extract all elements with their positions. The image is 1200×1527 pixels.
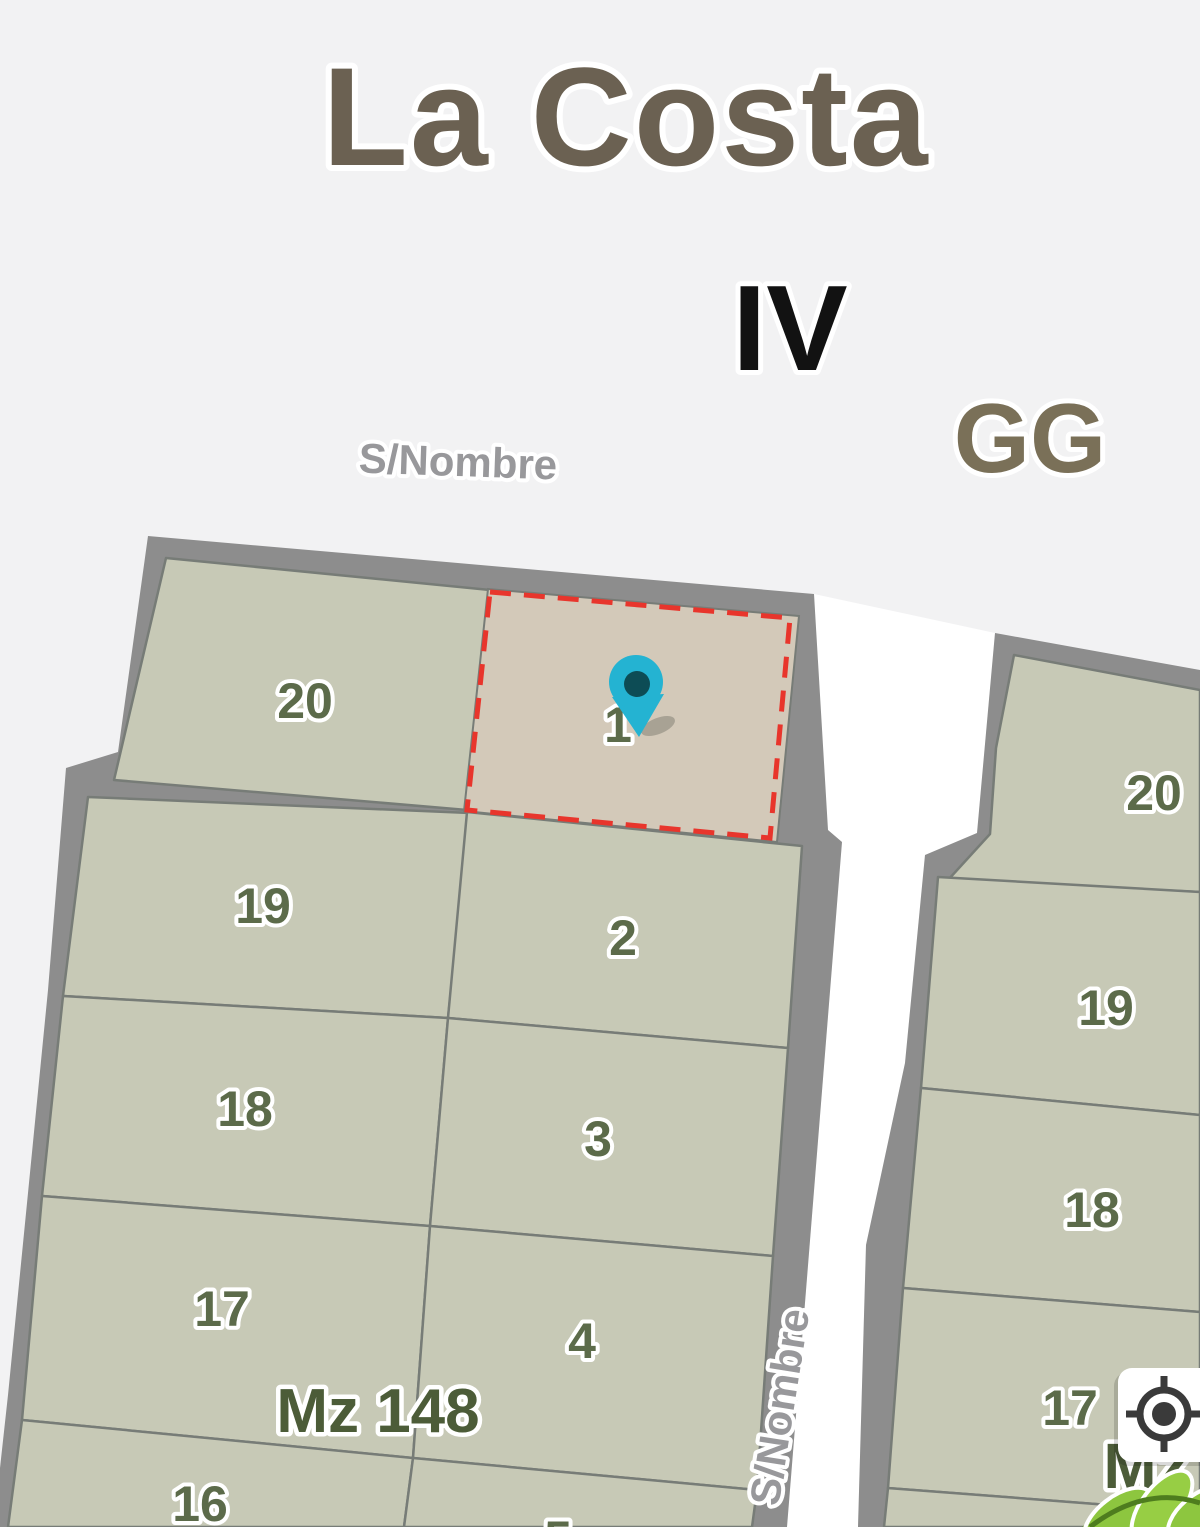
parcel-number-right-17: 17 — [1042, 1380, 1098, 1436]
parcel-number-lot3: 3 — [584, 1111, 612, 1167]
zone-label: GG — [954, 383, 1106, 493]
map-title: La Costa — [322, 38, 929, 195]
parcel-number-lot4: 4 — [568, 1313, 596, 1369]
parcel-number-right-18: 18 — [1064, 1182, 1120, 1238]
parcel-number-lot2: 2 — [609, 910, 637, 966]
pin-center-dot — [624, 671, 650, 697]
parcel-number-right-19: 19 — [1078, 980, 1134, 1036]
block-label-mz148: Mz 148 — [276, 1377, 479, 1446]
parcel-number-left-20: 20 — [277, 673, 333, 729]
map-canvas[interactable]: La Costa IV GG S/Nombre S/Nombre 20 19 1… — [0, 0, 1200, 1527]
parcel-number-left-16: 16 — [172, 1476, 228, 1527]
street-label-top: S/Nombre — [358, 435, 558, 489]
parcel-number-right-20: 20 — [1126, 765, 1182, 821]
parcel-number-lot5: 5 — [544, 1511, 572, 1527]
parcel-number-left-17: 17 — [194, 1281, 250, 1337]
parcel-number-left-19: 19 — [235, 878, 291, 934]
parcel-number-left-18: 18 — [217, 1081, 273, 1137]
section-roman-label: IV — [732, 260, 847, 396]
parcel-right-lot19[interactable] — [921, 877, 1200, 1115]
locate-button[interactable] — [1114, 1368, 1200, 1466]
parcel-right-lot18[interactable] — [903, 1088, 1200, 1312]
